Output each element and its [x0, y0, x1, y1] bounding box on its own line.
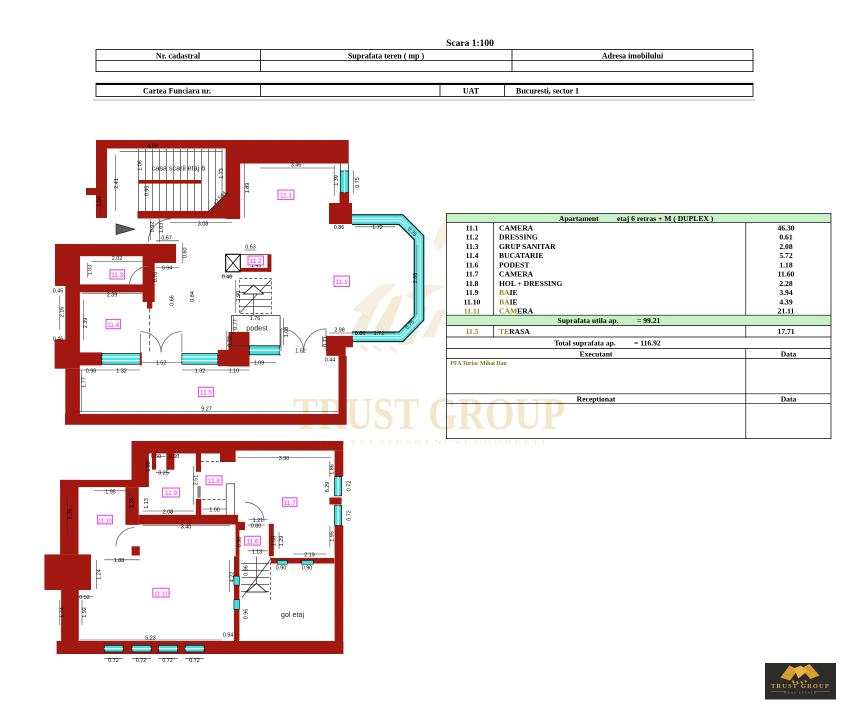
svg-text:0.72: 0.72: [162, 658, 173, 664]
svg-text:1.32: 1.32: [116, 368, 127, 374]
svg-text:46.30: 46.30: [777, 223, 794, 232]
svg-text:1.74: 1.74: [60, 607, 66, 618]
svg-text:11.6: 11.6: [247, 538, 259, 545]
svg-text:11.4: 11.4: [107, 322, 119, 329]
svg-text:11.5: 11.5: [466, 327, 479, 336]
svg-text:0.86: 0.86: [334, 225, 345, 231]
svg-text:1.08: 1.08: [272, 536, 278, 547]
svg-text:2.02: 2.02: [112, 256, 123, 262]
svg-text:Apartament: Apartament: [559, 214, 599, 223]
svg-text:0.52: 0.52: [79, 595, 90, 601]
svg-text:2.16: 2.16: [59, 307, 65, 318]
svg-text:0.44: 0.44: [325, 357, 336, 363]
svg-text:0.94: 0.94: [162, 266, 173, 272]
svg-text:0.60: 0.60: [183, 248, 189, 258]
svg-text:Nr. cadastral: Nr. cadastral: [156, 51, 201, 60]
svg-text:2.98: 2.98: [334, 327, 345, 333]
svg-text:11.1: 11.1: [466, 223, 479, 232]
svg-text:11.1: 11.1: [336, 279, 348, 286]
svg-text:0.96: 0.96: [86, 368, 97, 374]
svg-text:2.08: 2.08: [163, 509, 174, 515]
svg-text:0.60: 0.60: [151, 454, 162, 460]
svg-text:1.10: 1.10: [229, 368, 240, 374]
svg-text:1.08: 1.08: [146, 461, 152, 472]
svg-text:11.3: 11.3: [466, 242, 479, 251]
svg-text:4.09: 4.09: [147, 143, 158, 149]
svg-text:0.25: 0.25: [158, 471, 169, 477]
svg-text:2.41: 2.41: [114, 178, 120, 189]
svg-text:0.71: 0.71: [323, 336, 329, 347]
svg-text:0.96: 0.96: [243, 609, 249, 620]
svg-text:0.72: 0.72: [189, 658, 200, 664]
svg-text:HOL + DRESSING: HOL + DRESSING: [499, 279, 563, 288]
svg-text:1.00: 1.00: [209, 507, 220, 513]
svg-text:R E A L E S T A T E A G E N: R E A L E S T A T E A G E N C Y B U C U …: [313, 440, 545, 446]
svg-text:1.95: 1.95: [330, 531, 336, 542]
svg-text:Scara 1:100: Scara 1:100: [446, 39, 494, 49]
svg-text:GRUP SANITAR: GRUP SANITAR: [499, 242, 556, 251]
svg-text:podest: podest: [246, 324, 268, 333]
svg-text:0.75: 0.75: [355, 177, 361, 188]
svg-text:REAL ESTATE: REAL ESTATE: [784, 690, 817, 694]
svg-text:= 99.21: = 99.21: [637, 316, 661, 325]
svg-text:1.72: 1.72: [374, 331, 385, 337]
svg-text:11.2: 11.2: [250, 258, 262, 265]
svg-text:6.29: 6.29: [325, 482, 331, 493]
svg-text:1.95: 1.95: [105, 489, 116, 495]
svg-text:Cartea Funciara nr.: Cartea Funciara nr.: [143, 86, 211, 95]
svg-text:11.3: 11.3: [111, 272, 123, 279]
svg-text:11.60: 11.60: [778, 270, 795, 279]
svg-text:0.96: 0.96: [243, 565, 249, 576]
svg-text:5.23: 5.23: [145, 635, 156, 641]
svg-text:0.46: 0.46: [222, 274, 233, 280]
svg-text:0.63: 0.63: [245, 245, 256, 251]
svg-text:0.86: 0.86: [355, 331, 366, 337]
svg-text:3.46: 3.46: [291, 162, 302, 168]
svg-text:PODEST: PODEST: [499, 260, 529, 269]
svg-text:1.29: 1.29: [279, 536, 285, 547]
svg-text:1.89: 1.89: [245, 183, 251, 194]
svg-text:21.11: 21.11: [778, 307, 795, 316]
svg-text:3.94: 3.94: [779, 288, 792, 297]
svg-text:5.72: 5.72: [779, 251, 792, 260]
svg-text:0.80: 0.80: [251, 524, 262, 530]
svg-text:2.86: 2.86: [413, 273, 419, 284]
svg-text:Total suprafata ap.: Total suprafata ap.: [554, 338, 616, 347]
svg-text:etaj 6 retras + M ( DUPLEX ): etaj 6 retras + M ( DUPLEX ): [617, 214, 714, 223]
svg-text:11.2: 11.2: [466, 233, 479, 242]
svg-text:1.92: 1.92: [82, 607, 88, 618]
svg-text:0.92: 0.92: [150, 222, 156, 233]
svg-text:TERASA: TERASA: [499, 327, 530, 336]
svg-text:2.08: 2.08: [779, 242, 792, 251]
svg-text:CAMERA: CAMERA: [499, 270, 534, 279]
svg-text:11.1: 11.1: [280, 192, 292, 199]
svg-text:1.03: 1.03: [87, 265, 93, 276]
svg-text:1.52: 1.52: [156, 360, 167, 366]
svg-text:PFA Turiac Mihai Dan: PFA Turiac Mihai Dan: [451, 361, 508, 367]
svg-text:gol etaj: gol etaj: [281, 610, 305, 619]
svg-text:1.32: 1.32: [195, 368, 206, 374]
svg-text:1.13: 1.13: [144, 498, 150, 509]
svg-text:0.72: 0.72: [136, 658, 147, 664]
svg-text:1.13: 1.13: [252, 549, 263, 555]
svg-text:Suprafata teren ( mp ): Suprafata teren ( mp ): [348, 51, 425, 60]
svg-text:0.73: 0.73: [227, 336, 233, 347]
svg-text:Executant: Executant: [580, 349, 613, 358]
svg-text:0.84: 0.84: [190, 291, 196, 302]
svg-text:0.66: 0.66: [170, 295, 176, 306]
svg-text:2.39: 2.39: [83, 318, 89, 329]
svg-text:Suprafata utila ap.: Suprafata utila ap.: [558, 316, 619, 325]
svg-text:1.88: 1.88: [114, 558, 125, 564]
svg-text:DRESSING: DRESSING: [499, 233, 538, 242]
svg-text:= 116.92: = 116.92: [634, 338, 661, 347]
svg-text:CAMERA: CAMERA: [499, 307, 534, 316]
svg-text:11.11: 11.11: [154, 591, 167, 597]
svg-text:TRUST GROUP: TRUST GROUP: [771, 683, 830, 690]
svg-text:2.28: 2.28: [779, 279, 792, 288]
svg-text:11.5: 11.5: [200, 390, 212, 397]
svg-text:1.39: 1.39: [334, 175, 340, 186]
svg-text:Data: Data: [781, 395, 797, 404]
svg-text:11.9: 11.9: [466, 288, 479, 297]
svg-text:1.24: 1.24: [96, 569, 102, 580]
svg-text:11.10: 11.10: [98, 518, 112, 524]
svg-text:1.03: 1.03: [159, 223, 165, 234]
svg-text:BAIE: BAIE: [499, 288, 518, 297]
svg-text:3.90: 3.90: [279, 456, 290, 462]
svg-text:Bucuresti, sector 1: Bucuresti, sector 1: [516, 86, 579, 95]
svg-text:2.19: 2.19: [304, 552, 315, 558]
svg-text:11.9: 11.9: [165, 490, 177, 497]
svg-text:1.04: 1.04: [97, 196, 103, 207]
svg-text:11.7: 11.7: [284, 500, 296, 507]
svg-text:4.39: 4.39: [779, 297, 792, 306]
svg-text:1.73: 1.73: [219, 168, 225, 179]
svg-text:11.8: 11.8: [208, 478, 220, 485]
svg-text:0.45: 0.45: [53, 288, 64, 294]
svg-text:17.71: 17.71: [777, 327, 794, 336]
svg-text:1.76: 1.76: [250, 316, 261, 322]
svg-text:1.90: 1.90: [236, 291, 242, 302]
svg-text:11.11: 11.11: [464, 307, 480, 316]
svg-text:0.67: 0.67: [161, 235, 172, 241]
svg-text:11.8: 11.8: [466, 279, 479, 288]
svg-text:11.4: 11.4: [466, 251, 479, 260]
svg-text:0.95: 0.95: [145, 186, 151, 197]
svg-text:1.52: 1.52: [295, 349, 306, 355]
svg-text:0.46: 0.46: [53, 336, 64, 342]
svg-text:1.72: 1.72: [372, 225, 383, 231]
svg-text:4.22: 4.22: [229, 572, 235, 583]
svg-text:1.18: 1.18: [779, 260, 792, 269]
svg-text:2.35: 2.35: [67, 509, 73, 520]
svg-text:11.6: 11.6: [466, 260, 479, 269]
svg-text:0.61: 0.61: [779, 233, 792, 242]
svg-text:11.7: 11.7: [466, 270, 479, 279]
svg-text:1.77: 1.77: [81, 377, 87, 388]
svg-text:3.08: 3.08: [198, 221, 209, 227]
svg-text:1.09: 1.09: [254, 360, 265, 366]
svg-text:casa scarii etaj 6: casa scarii etaj 6: [152, 164, 206, 173]
svg-text:2.51: 2.51: [194, 475, 200, 486]
svg-text:9.27: 9.27: [201, 406, 212, 412]
svg-text:Receptionat: Receptionat: [577, 395, 616, 404]
svg-text:0.90: 0.90: [237, 537, 243, 548]
svg-text:0.77: 0.77: [233, 319, 239, 330]
svg-text:0.72: 0.72: [347, 510, 353, 521]
svg-text:11.10: 11.10: [464, 297, 481, 306]
svg-text:BAIE: BAIE: [499, 297, 518, 306]
svg-text:0.60: 0.60: [169, 454, 180, 460]
svg-text:0.90: 0.90: [276, 565, 287, 571]
svg-text:0.72: 0.72: [108, 658, 119, 664]
svg-text:2.39: 2.39: [107, 292, 118, 298]
svg-text:0.94: 0.94: [223, 633, 234, 639]
svg-text:3.40: 3.40: [181, 524, 192, 530]
svg-text:0.72: 0.72: [347, 481, 353, 492]
svg-text:Adresa imobilului: Adresa imobilului: [602, 51, 664, 60]
svg-text:1.86: 1.86: [330, 464, 336, 475]
svg-text:1.06: 1.06: [138, 160, 144, 171]
svg-text:UAT: UAT: [463, 86, 480, 95]
svg-text:0.90: 0.90: [302, 565, 313, 571]
svg-text:CAMERA: CAMERA: [499, 223, 534, 232]
svg-text:BUCATARIE: BUCATARIE: [499, 251, 543, 260]
svg-text:1.35: 1.35: [129, 497, 135, 508]
svg-text:0.70: 0.70: [153, 272, 159, 283]
svg-text:1.08: 1.08: [284, 327, 290, 338]
svg-text:Data: Data: [781, 349, 797, 358]
